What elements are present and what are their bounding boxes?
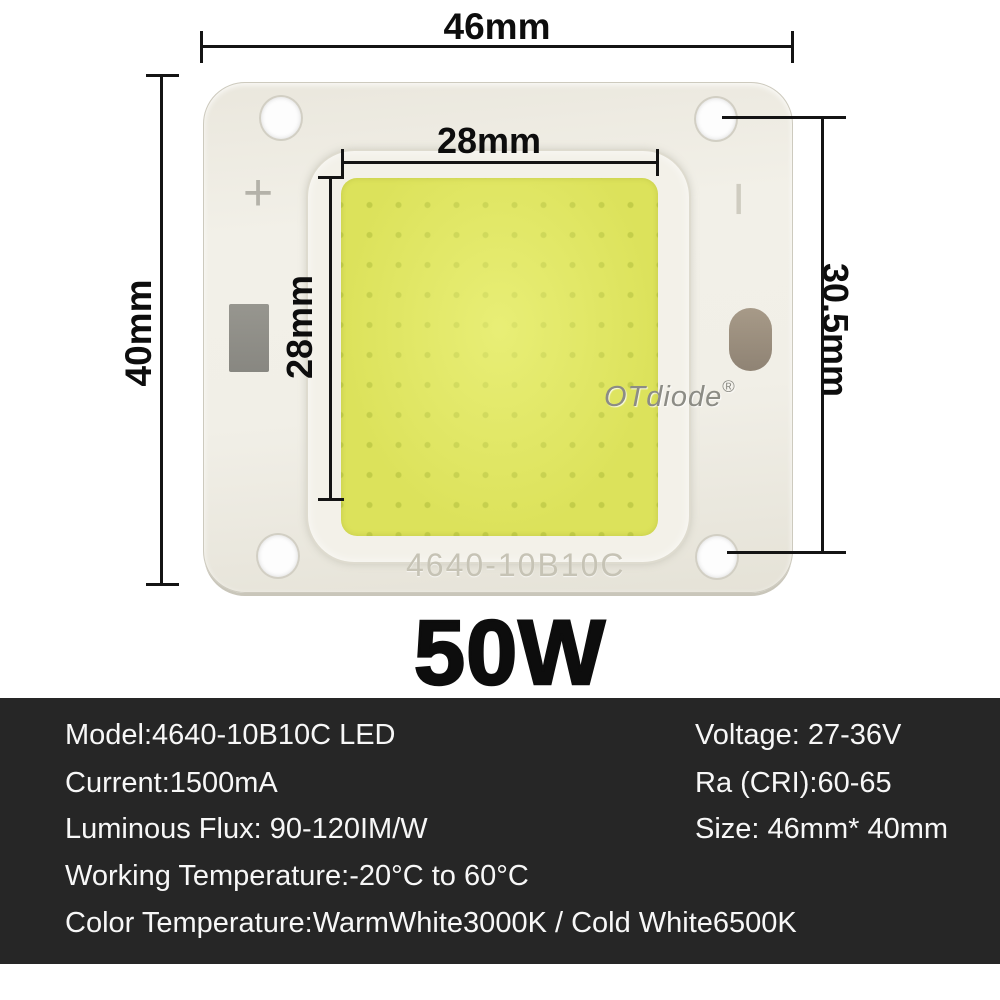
brand-watermark: OTdiode® <box>604 377 804 414</box>
chip-code-engraving: 4640-10B10C <box>406 547 666 584</box>
dim-label-emitter-width: 28mm <box>419 120 559 162</box>
dim-tick-overall-height-top <box>146 74 179 77</box>
dim-line-overall-width <box>201 45 793 48</box>
dim-line-overall-height <box>160 75 163 586</box>
dim-tick-emitter-height-top <box>318 176 344 179</box>
emitter-plateau <box>306 149 691 564</box>
negative-terminal-mark: − <box>707 168 767 230</box>
dim-line-emitter-height <box>329 177 332 500</box>
dim-tick-emitter-height-bottom <box>318 498 344 501</box>
brand-name: OTdiode <box>604 381 722 413</box>
solder-pad-negative <box>729 308 772 371</box>
spec-panel: Model:4640-10B10C LED Current:1500mA Lum… <box>0 698 1000 964</box>
dim-line-hole-spacing <box>821 117 824 553</box>
solder-pad-positive <box>229 304 269 372</box>
spec-cri: Ra (CRI):60-65 <box>695 767 892 800</box>
dim-label-overall-height: 40mm <box>118 268 158 398</box>
spec-voltage: Voltage: 27-36V <box>695 719 901 752</box>
dim-tick-overall-height-bottom <box>146 583 179 586</box>
spec-luminous-flux: Luminous Flux: 90-120IM/W <box>65 813 428 846</box>
phosphor-emitting-area <box>341 178 658 536</box>
dim-tick-emitter-width-left <box>341 149 344 176</box>
dim-label-overall-width: 46mm <box>427 6 567 48</box>
spec-size: Size: 46mm* 40mm <box>695 813 948 846</box>
power-rating-title: 50W <box>350 601 670 706</box>
dim-connector-hole-spacing-bottom <box>727 551 846 554</box>
product-diagram-canvas: 46mm 40mm + − OTdiode® 4640-10B10C 28mm … <box>0 0 1000 1000</box>
spec-color-temperature: Color Temperature:WarmWhite3000K / Cold … <box>65 907 797 940</box>
mounting-hole-bottom-left <box>256 533 300 579</box>
mounting-hole-top-right <box>694 96 738 142</box>
spec-working-temperature: Working Temperature:-20°C to 60°C <box>65 860 529 893</box>
dim-label-emitter-height: 28mm <box>279 262 319 392</box>
registered-trademark-symbol: ® <box>722 377 736 396</box>
spec-current: Current:1500mA <box>65 767 278 800</box>
dim-tick-overall-width-left <box>200 31 203 63</box>
spec-model: Model:4640-10B10C LED <box>65 719 395 752</box>
dim-connector-hole-spacing-top <box>722 116 846 119</box>
dim-tick-emitter-width-right <box>656 149 659 176</box>
dim-line-emitter-width <box>342 161 658 164</box>
positive-terminal-mark: + <box>232 167 284 223</box>
mounting-hole-bottom-right <box>695 534 739 580</box>
dim-tick-overall-width-right <box>791 31 794 63</box>
mounting-hole-top-left <box>259 95 303 141</box>
